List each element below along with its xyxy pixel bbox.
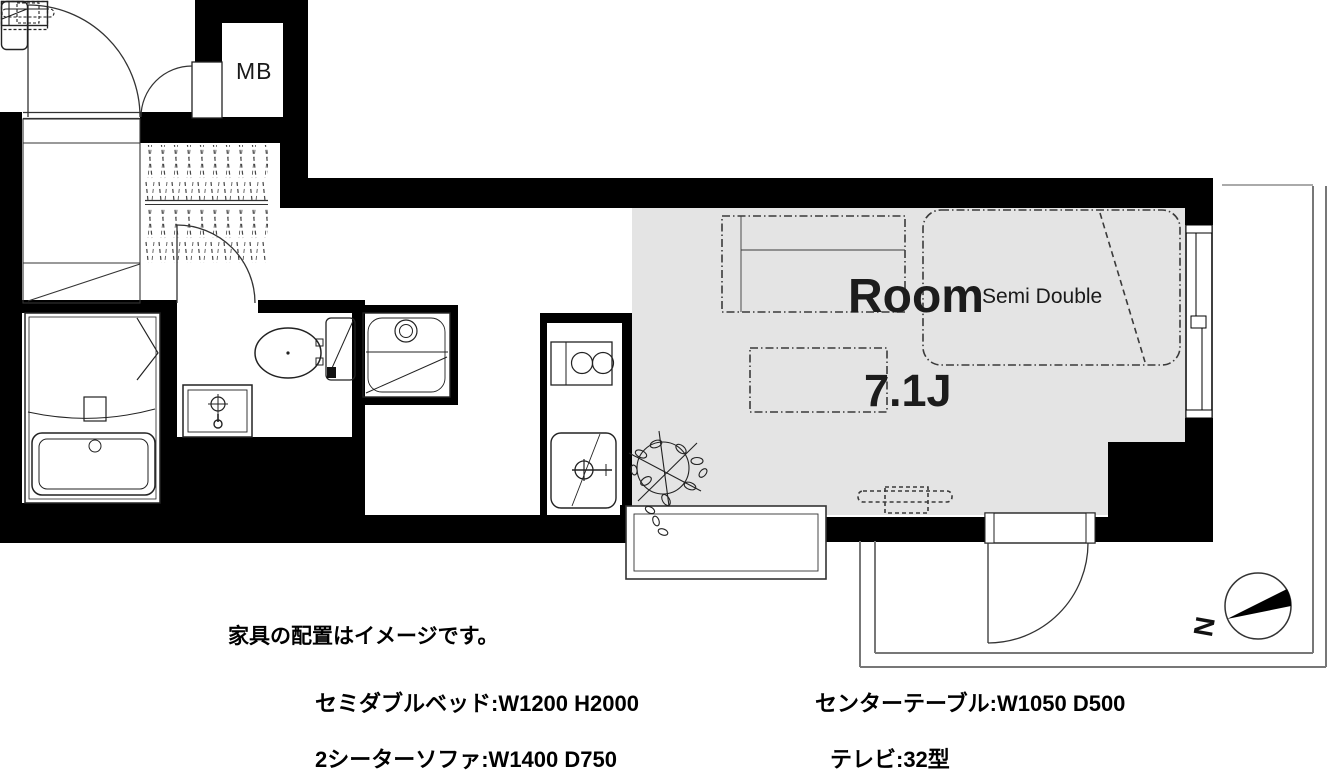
floor-plan-drawing: MB (0, 0, 1330, 775)
washbasin (183, 385, 252, 437)
bed-type-label: Semi Double (982, 285, 1102, 308)
meter-box-door-leaf (192, 62, 222, 118)
legend-note: 家具の配置はイメージです。 (228, 620, 498, 650)
room-floor (632, 208, 1185, 515)
legend-tv-icon (0, 0, 56, 26)
legend-bed-label: セミダブルベッド:W1200 H2000 (315, 686, 639, 718)
toilet (255, 318, 355, 380)
bay-window (626, 506, 826, 579)
north-label: N (1187, 614, 1220, 638)
closet (23, 119, 140, 303)
floor-plan-page: MB (0, 0, 1330, 775)
legend-table-label: センターテーブル:W1050 D500 (815, 686, 1125, 718)
bathroom-folding-door (137, 318, 158, 380)
north-compass: N (1187, 573, 1291, 639)
meter-box-door-arc (141, 66, 192, 117)
bath-counter-curve (28, 409, 155, 418)
bathtub (32, 433, 155, 495)
kitchen (551, 342, 616, 508)
meter-box-label: MB (236, 58, 273, 84)
washing-machine-pan (363, 313, 450, 397)
legend-sofa-label: 2シーターソファ:W1400 D750 (315, 742, 617, 774)
gas-stove (551, 342, 614, 385)
room-size-label: 7.1J (864, 365, 952, 416)
kitchen-sink (551, 433, 616, 508)
shoe-storage-hatch (145, 143, 268, 265)
legend-tv-label: テレビ:32型 (830, 742, 950, 774)
bathroom (25, 313, 160, 503)
room-title: Room (848, 270, 984, 323)
sliding-window (1186, 225, 1212, 418)
balcony-door (985, 513, 1095, 643)
